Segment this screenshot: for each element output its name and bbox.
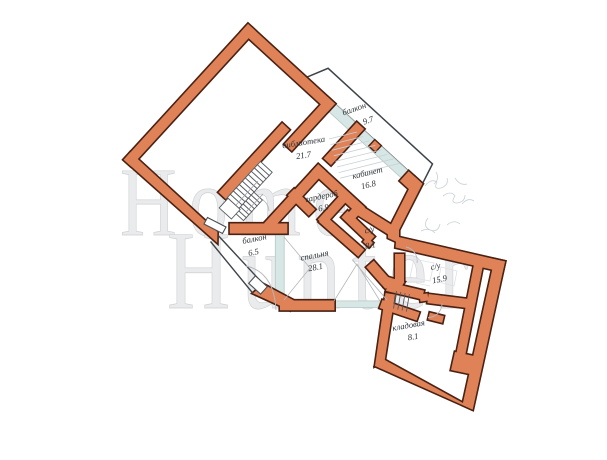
svg-text:с/у: с/у bbox=[430, 260, 442, 272]
svg-text:с/у: с/у bbox=[364, 224, 376, 236]
svg-text:8.1: 8.1 bbox=[364, 239, 376, 251]
svg-text:8.1: 8.1 bbox=[407, 331, 419, 343]
